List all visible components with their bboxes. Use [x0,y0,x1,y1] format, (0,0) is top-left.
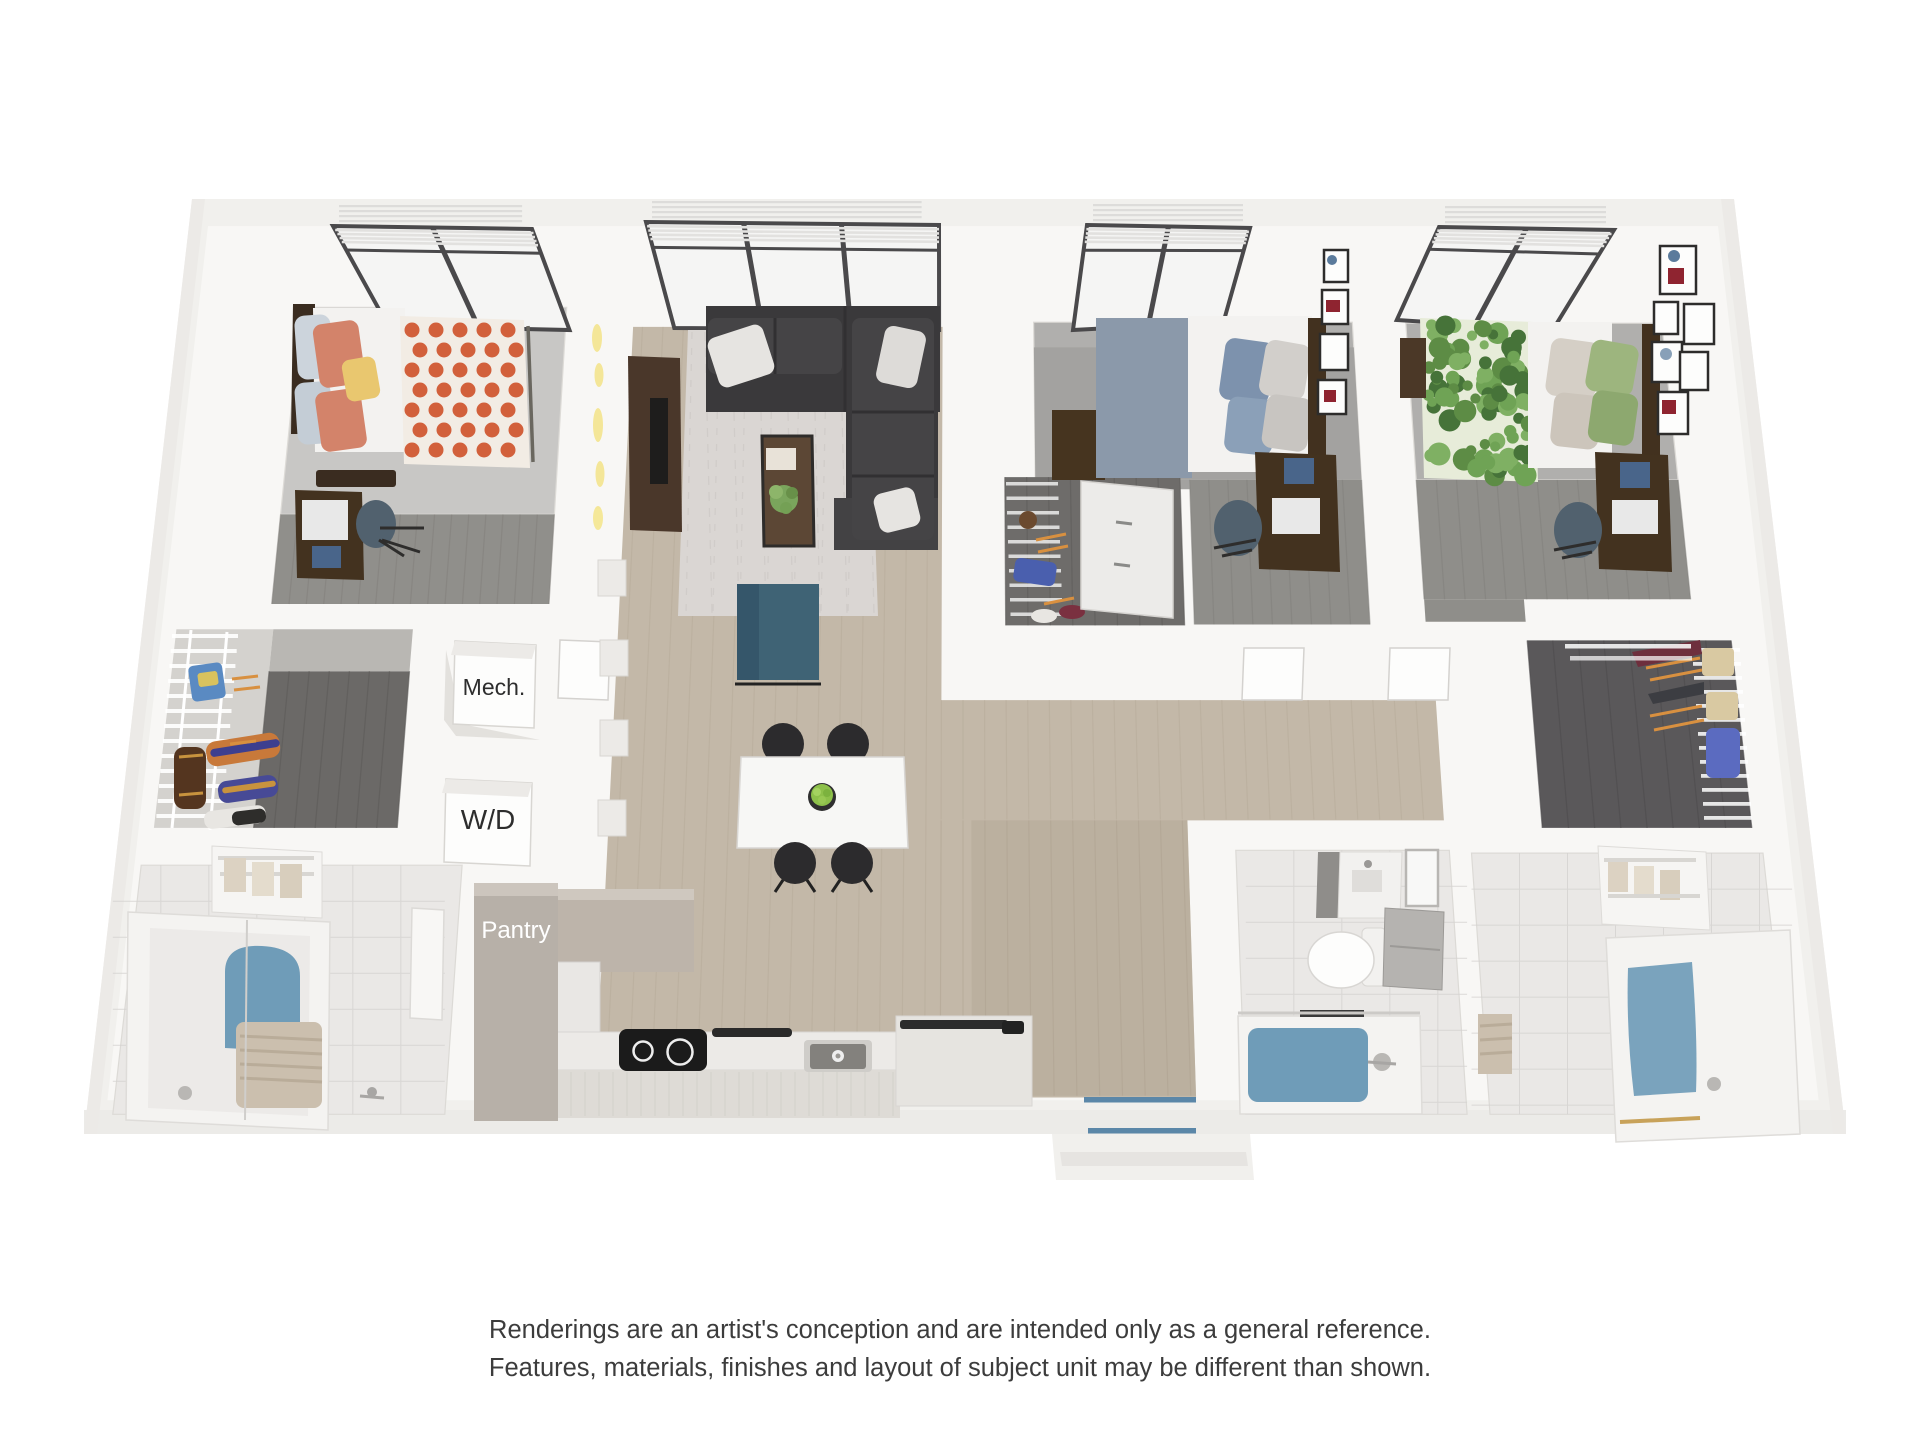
svg-text:Renderings are an artist's con: Renderings are an artist's conception an… [489,1316,1431,1344]
svg-text:Pantry: Pantry [481,917,550,944]
svg-text:Mech.: Mech. [463,674,526,700]
svg-text:W/D: W/D [461,804,515,835]
svg-text:Features, materials, finishes: Features, materials, finishes and layout… [489,1354,1431,1382]
